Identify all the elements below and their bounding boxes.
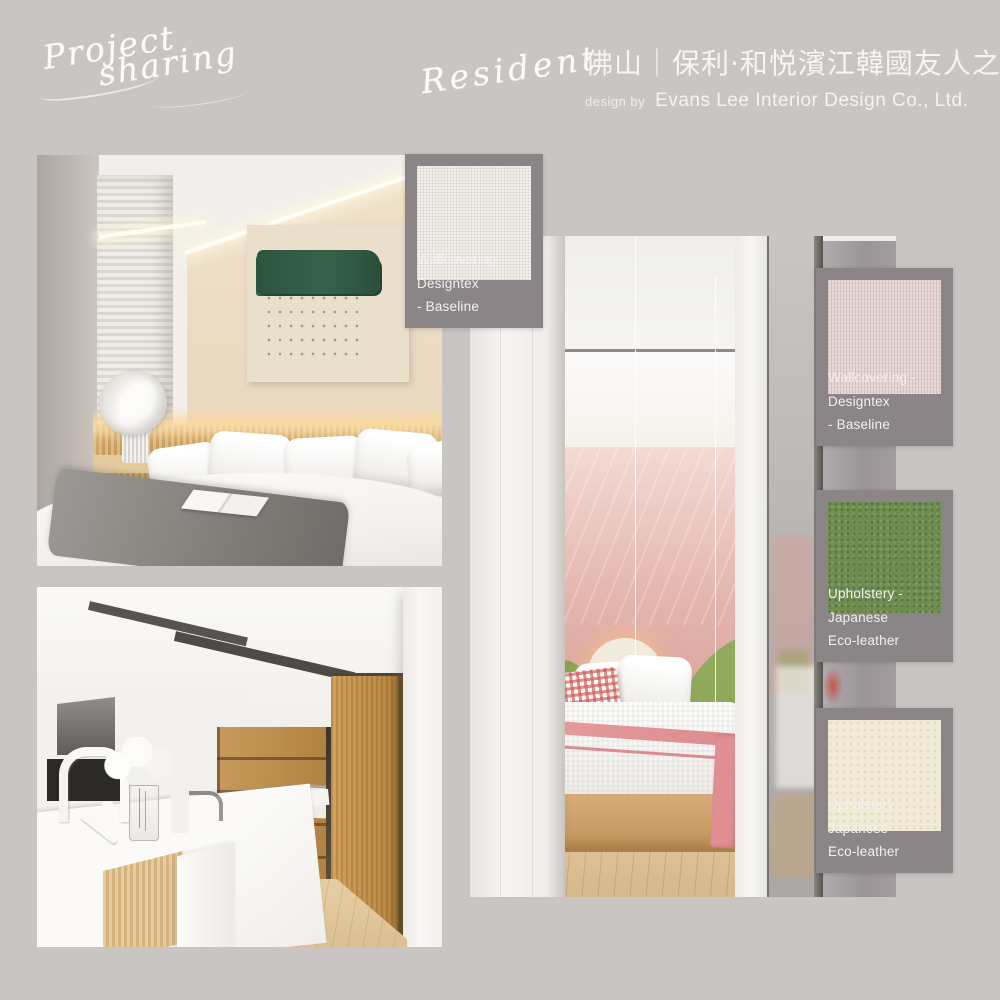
white-bottle-vase <box>171 775 189 833</box>
swatch-label-line1: Wallcovering - Designtex <box>828 366 953 413</box>
chrome-faucet <box>189 791 223 821</box>
roller-blind <box>565 352 735 448</box>
swatch-label: Wallcovering - Designtex - Baseline <box>828 366 953 437</box>
glass-reflection-floor <box>773 794 817 878</box>
moodboard-page: Project sharing Resident 佛山｜保利·和悦濱江韓國友人之… <box>0 0 1000 1000</box>
kitchen-photo <box>37 587 442 947</box>
red-reflection-detail <box>823 667 843 705</box>
resident-script-title: Resident <box>418 38 601 102</box>
swatch-label-line2: - Baseline <box>417 295 543 319</box>
bedroom-doorway <box>565 236 735 897</box>
island-waterfall-panel <box>177 842 235 947</box>
paint-drips <box>266 294 363 363</box>
right-wall <box>403 587 442 947</box>
swatch-label: Upholstery - Japanese Eco-leather <box>828 793 953 864</box>
swatch-label-line2: - Baseline <box>828 413 953 437</box>
white-wall-column <box>470 236 565 897</box>
glass-vase <box>129 785 159 841</box>
script-underline-flourish-2 <box>150 86 247 111</box>
glass-partition <box>767 236 823 897</box>
hydrangea-flowers <box>103 737 177 789</box>
swatch-card-wallcovering-white: Wallcovering - Designtex - Baseline <box>405 154 543 328</box>
swatch-label: Upholstery - Japanese Eco-leather <box>828 582 953 653</box>
swatch-label-line2: Eco-leather <box>828 840 953 864</box>
white-door-frame <box>735 236 767 897</box>
pendant-light-cord <box>635 236 636 666</box>
pendant-light-cord-2 <box>715 276 716 710</box>
swatch-label-line1: Upholstery - Japanese <box>828 582 953 629</box>
swatch-label-line1: Wallcovering - Designtex <box>417 248 543 295</box>
design-by-label: design by <box>585 94 645 109</box>
swatch-card-upholstery-green: Upholstery - Japanese Eco-leather <box>816 490 953 662</box>
bedroom-photo <box>37 155 442 566</box>
abstract-artwork <box>247 225 409 382</box>
swatch-label-line1: Upholstery - Japanese <box>828 793 953 840</box>
swatch-label-line2: Eco-leather <box>828 629 953 653</box>
project-title-chinese: 佛山｜保利·和悦濱江韓國友人之家 <box>585 42 975 82</box>
table-lamp-base <box>122 433 149 463</box>
glass-reflection-bed <box>776 666 818 788</box>
designer-byline: design byEvans Lee Interior Design Co., … <box>585 90 955 112</box>
designer-name: Evans Lee Interior Design Co., Ltd. <box>655 90 968 111</box>
bedroom-ceiling <box>565 236 735 349</box>
swatch-label: Wallcovering - Designtex - Baseline <box>417 248 543 319</box>
green-brushstroke <box>257 250 380 294</box>
swatch-card-upholstery-cream: Upholstery - Japanese Eco-leather <box>816 708 953 873</box>
swatch-card-wallcovering-pink: Wallcovering - Designtex - Baseline <box>816 268 953 446</box>
